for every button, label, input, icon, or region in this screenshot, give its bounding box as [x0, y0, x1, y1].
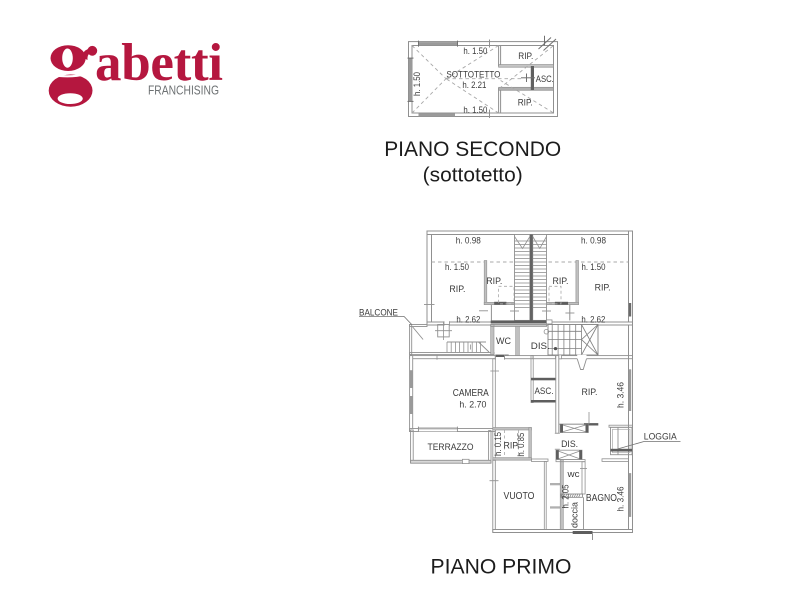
svg-text:CAMERA: CAMERA [453, 388, 489, 399]
svg-text:VUOTO: VUOTO [504, 491, 535, 502]
svg-text:BAGNO: BAGNO [586, 493, 617, 504]
svg-text:h. 0.98: h. 0.98 [581, 236, 606, 246]
svg-text:h. 1.50: h. 1.50 [582, 262, 606, 272]
svg-text:ASC.: ASC. [536, 74, 554, 84]
svg-text:WC: WC [496, 336, 511, 346]
svg-text:LOGGIA: LOGGIA [644, 431, 677, 441]
svg-text:SOTTOTETTO: SOTTOTETTO [446, 69, 500, 79]
svg-text:FRANCHISING: FRANCHISING [148, 83, 219, 98]
svg-text:PIANO PRIMO: PIANO PRIMO [431, 555, 572, 579]
svg-text:wc: wc [566, 469, 580, 479]
svg-text:h. 2.21: h. 2.21 [462, 80, 486, 90]
svg-text:RIP.: RIP. [595, 283, 611, 293]
svg-text:h. 0.98: h. 0.98 [456, 236, 481, 246]
svg-text:h. 3.46: h. 3.46 [616, 487, 626, 512]
svg-text:h. 2.62: h. 2.62 [456, 315, 480, 325]
svg-text:h. 1.50: h. 1.50 [463, 105, 487, 115]
svg-text:h. 1.50: h. 1.50 [463, 46, 487, 56]
svg-text:h. 0.15: h. 0.15 [493, 432, 503, 456]
svg-text:h. 2.70: h. 2.70 [459, 399, 486, 409]
svg-text:h. 1.50: h. 1.50 [445, 262, 469, 272]
svg-text:RIP.: RIP. [486, 276, 502, 286]
svg-text:RIP.: RIP. [518, 51, 533, 61]
svg-text:DIS.: DIS. [561, 439, 578, 449]
svg-text:h. 2.62: h. 2.62 [581, 315, 605, 325]
svg-text:RIP.: RIP. [518, 97, 533, 107]
svg-text:h. 1.50: h. 1.50 [412, 72, 422, 96]
svg-text:RIP.: RIP. [582, 387, 598, 397]
svg-text:h. 3.46: h. 3.46 [616, 382, 626, 408]
svg-text:RIP.: RIP. [449, 284, 465, 294]
svg-text:TERRAZZO: TERRAZZO [428, 442, 474, 452]
svg-text:RIP.: RIP. [553, 276, 569, 286]
svg-text:DIS.: DIS. [531, 341, 550, 351]
svg-text:PIANO SECONDO: PIANO SECONDO [384, 138, 561, 161]
svg-text:BALCONE: BALCONE [359, 307, 398, 317]
svg-text:doccia: doccia [569, 502, 579, 528]
svg-text:(sottotetto): (sottotetto) [423, 165, 523, 187]
svg-text:ASC.: ASC. [535, 386, 554, 396]
svg-text:h. 0.85: h. 0.85 [516, 433, 526, 457]
